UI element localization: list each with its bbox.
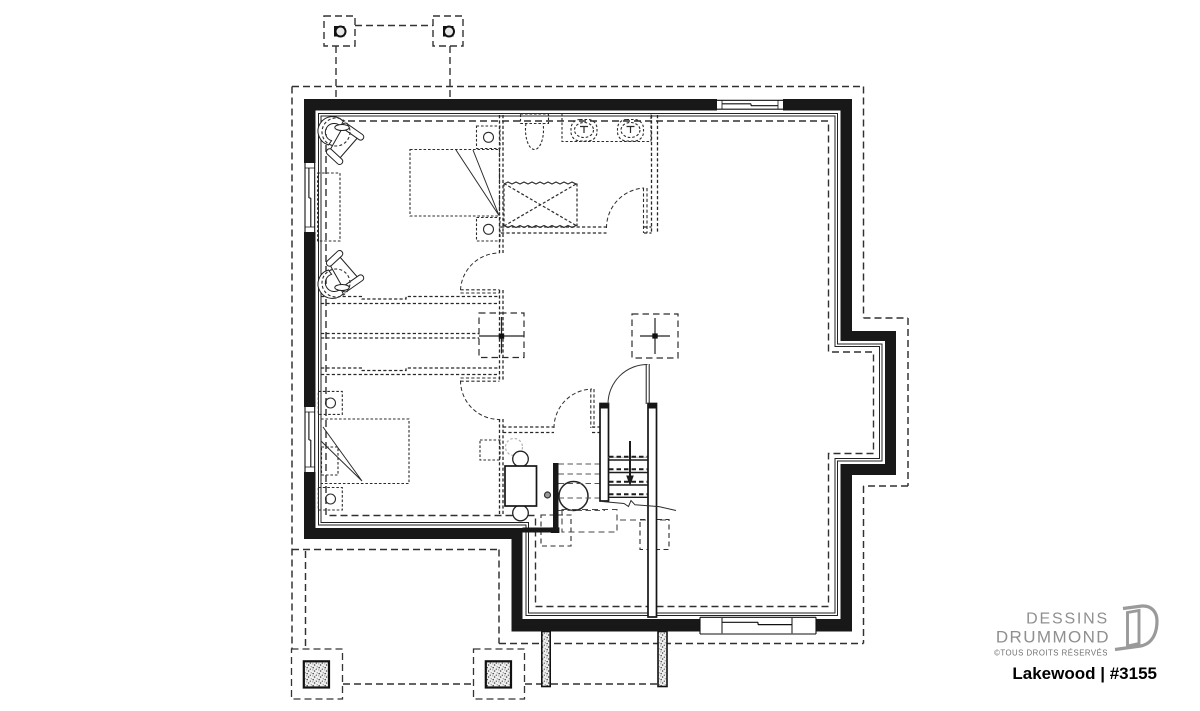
svg-text:DESSINS: DESSINS <box>1026 611 1109 628</box>
svg-text:©TOUS DROITS RÉSERVÉS: ©TOUS DROITS RÉSERVÉS <box>994 649 1108 658</box>
svg-text:DRUMMOND: DRUMMOND <box>996 628 1110 647</box>
svg-text:Lakewood | #3155: Lakewood | #3155 <box>1012 664 1157 683</box>
